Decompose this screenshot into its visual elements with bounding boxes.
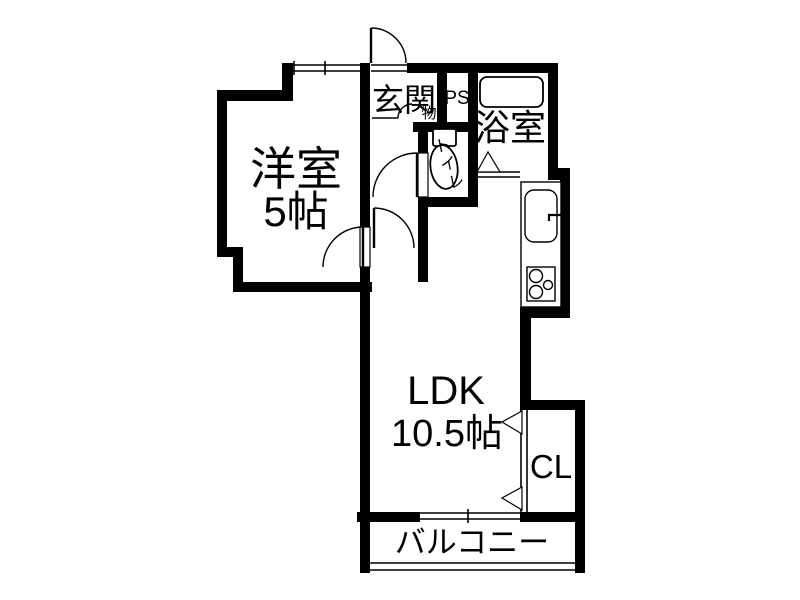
label-ldk-size: 10.5帖 bbox=[391, 413, 503, 455]
entrance-door-swing bbox=[371, 28, 406, 63]
wall-top bbox=[407, 63, 558, 73]
closet-door-triangle-top bbox=[502, 411, 522, 434]
toilet-door-frame bbox=[418, 153, 428, 197]
western-room-door-swing bbox=[323, 227, 363, 267]
closet-door-triangle-bottom bbox=[502, 487, 522, 510]
stove-burner-2 bbox=[530, 286, 543, 299]
wall-hall-ldk-divider bbox=[418, 197, 428, 282]
wall-ldk-right bbox=[520, 307, 531, 407]
stove-burner-3 bbox=[544, 281, 553, 290]
label-bathroom: 浴室 bbox=[474, 107, 546, 148]
label-closet: CL bbox=[530, 448, 572, 485]
label-balcony: バルコニー bbox=[395, 525, 549, 560]
label-pipe-shaft: PS bbox=[444, 88, 469, 109]
wall-west-left bbox=[217, 90, 227, 257]
label-western-room-size: 5帖 bbox=[263, 188, 328, 235]
wall-center-lower bbox=[360, 267, 370, 573]
wall-west-bottom bbox=[233, 282, 372, 292]
western-room-door-frame bbox=[360, 227, 370, 267]
bathtub bbox=[480, 77, 543, 107]
toilet-char-1: ト bbox=[433, 137, 452, 157]
toilet-char-3: レ bbox=[447, 173, 466, 193]
wall-ldk-bottom-right bbox=[520, 512, 585, 522]
label-ldk: LDK bbox=[407, 369, 485, 413]
wall-center-upper bbox=[360, 63, 370, 227]
wall-closet-right bbox=[575, 400, 585, 573]
floor-plan-svg: 洋室 5帖 玄関 物 PS 浴室 ト イ レ LDK 10.5帖 CL バルコニ… bbox=[0, 0, 800, 600]
toilet-char-2: イ bbox=[439, 155, 458, 175]
label-storage: 物 bbox=[421, 105, 436, 122]
wall-bath-right bbox=[548, 63, 558, 172]
floor-plan: 洋室 5帖 玄関 物 PS 浴室 ト イ レ LDK 10.5帖 CL バルコニ… bbox=[0, 0, 800, 600]
stove-burner-1 bbox=[530, 270, 543, 283]
wall-toilet-left-upper bbox=[418, 122, 428, 153]
wall-toilet-bottom bbox=[418, 197, 478, 207]
hall-door-swing bbox=[374, 208, 414, 248]
bathroom-door-triangle bbox=[477, 152, 500, 172]
wall-west-top bbox=[217, 90, 293, 101]
toilet-door-swing bbox=[373, 153, 417, 197]
